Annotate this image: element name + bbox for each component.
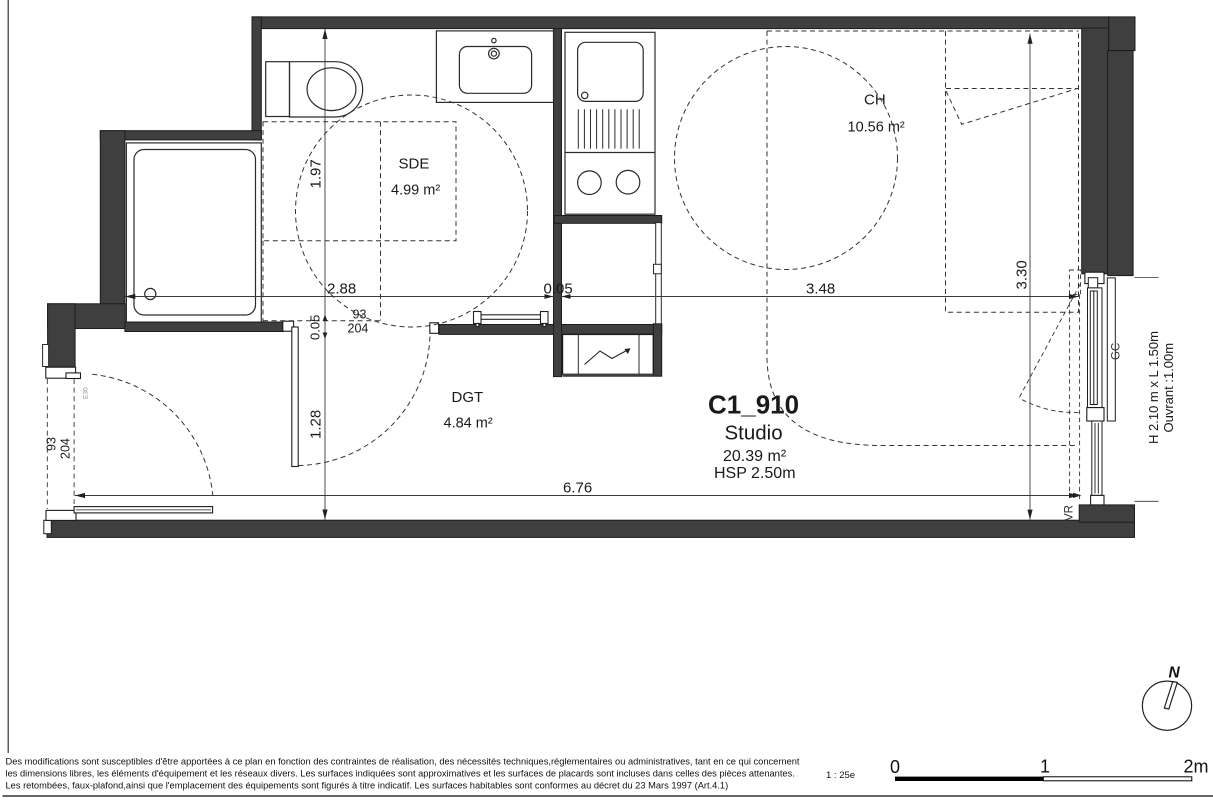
svg-text:93: 93 [353, 308, 367, 322]
svg-text:1.28: 1.28 [308, 410, 325, 439]
svg-text:DGT: DGT [452, 389, 484, 406]
svg-text:E30: E30 [83, 387, 90, 399]
svg-text:20.39 m²: 20.39 m² [723, 448, 787, 465]
svg-text:Des modifications sont suscept: Des modifications sont susceptibles d'êt… [6, 757, 800, 767]
svg-text:1: 1 [1040, 757, 1050, 777]
svg-text:Studio: Studio [725, 422, 783, 445]
svg-text:HSP 2.50m: HSP 2.50m [714, 465, 796, 482]
svg-text:0.05: 0.05 [308, 315, 323, 340]
svg-text:10.56 m²: 10.56 m² [848, 120, 905, 136]
svg-text:Les retombées, faux-plafond,ai: Les retombées, faux-plafond,ainsi que l'… [6, 781, 729, 791]
svg-text:C1_910: C1_910 [708, 390, 799, 420]
svg-text:GC: GC [1111, 343, 1123, 360]
svg-text:SDE: SDE [399, 156, 430, 173]
svg-text:2m: 2m [1184, 757, 1209, 777]
svg-text:6.76: 6.76 [563, 480, 592, 497]
svg-text:3.30: 3.30 [1014, 260, 1031, 289]
svg-text:0.05: 0.05 [544, 281, 573, 298]
svg-text:204: 204 [348, 322, 369, 336]
svg-text:0: 0 [890, 757, 900, 777]
svg-text:204: 204 [59, 438, 73, 459]
svg-text:2.88: 2.88 [327, 281, 356, 298]
svg-text:N: N [1169, 665, 1181, 682]
svg-text:CH: CH [864, 92, 886, 109]
svg-text:1 : 25e: 1 : 25e [826, 770, 855, 781]
svg-text:4.99 m²: 4.99 m² [391, 183, 440, 199]
svg-text:les dimensions libres, les élé: les dimensions libres, les éléments d'éq… [6, 769, 795, 779]
svg-text:H 2.10 m x L 1.50m: H 2.10 m x L 1.50m [1146, 331, 1161, 444]
svg-text:4.84 m²: 4.84 m² [444, 416, 493, 432]
svg-text:93: 93 [45, 437, 59, 451]
svg-text:1.97: 1.97 [308, 159, 325, 188]
svg-text:VR: VR [1064, 505, 1076, 521]
svg-text:Ouvrant :1.00m: Ouvrant :1.00m [1161, 343, 1176, 433]
svg-text:3.48: 3.48 [806, 281, 835, 298]
